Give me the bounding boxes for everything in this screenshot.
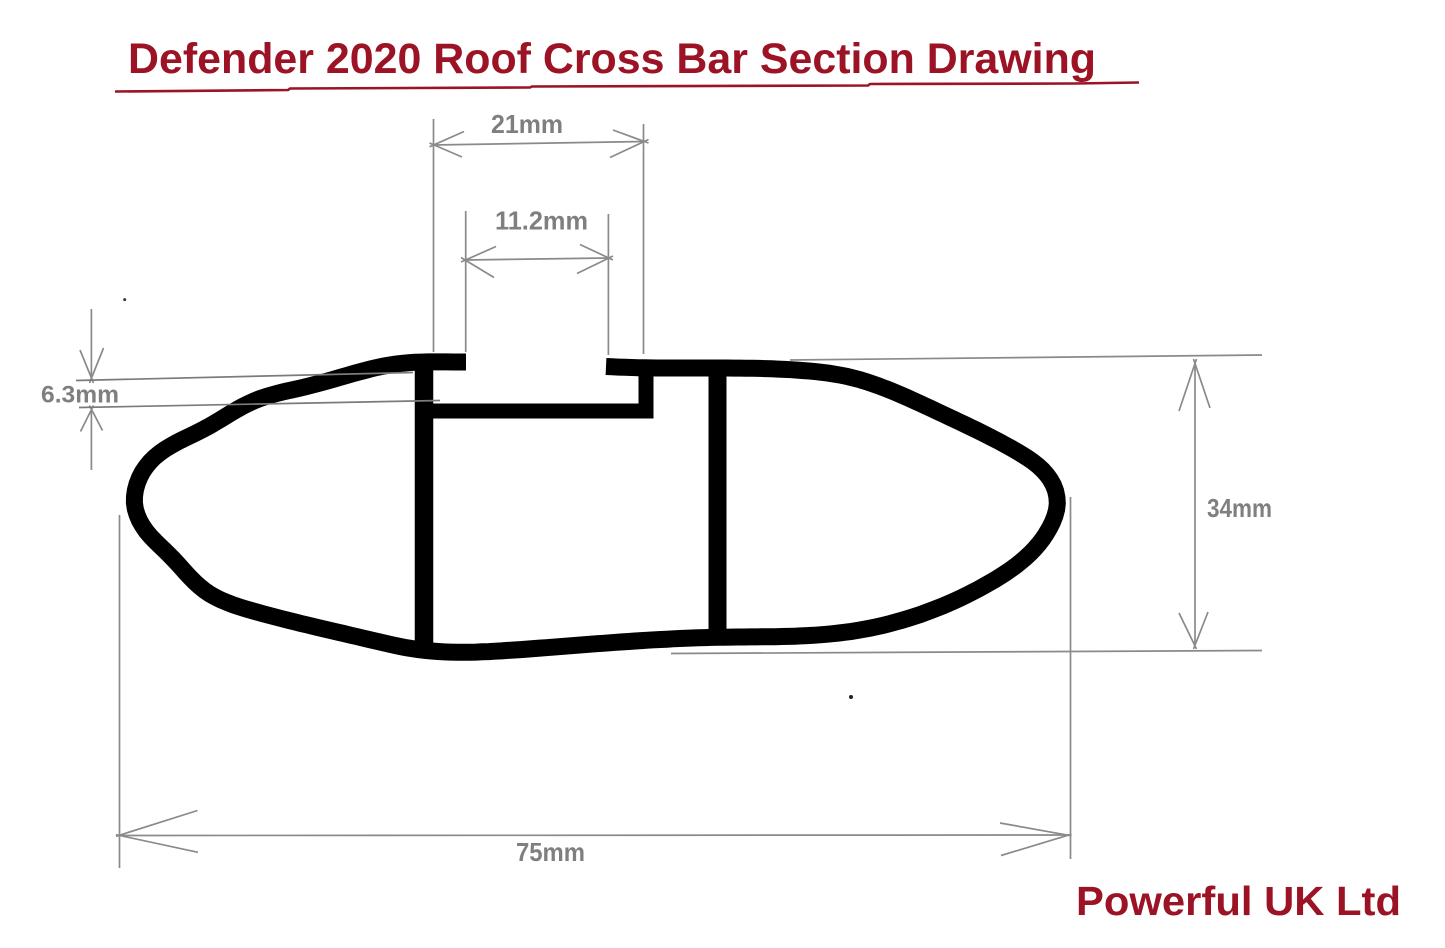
svg-text:Defender 2020 Roof Cross Bar S: Defender 2020 Roof Cross Bar Section Dra… xyxy=(128,35,1096,83)
svg-text:Powerful UK Ltd: Powerful UK Ltd xyxy=(1076,878,1401,924)
svg-text:75mm: 75mm xyxy=(516,837,585,867)
svg-text:6.3mm: 6.3mm xyxy=(41,382,119,409)
svg-text:11.2mm: 11.2mm xyxy=(495,206,588,236)
svg-text:34mm: 34mm xyxy=(1207,493,1272,523)
svg-text:21mm: 21mm xyxy=(491,109,563,139)
